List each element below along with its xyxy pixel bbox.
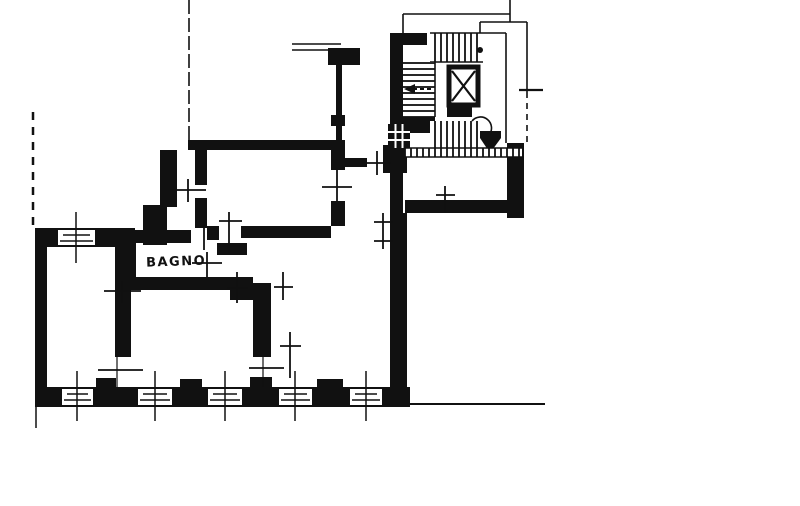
entry-arrow-bar — [480, 131, 501, 138]
wall-thin-upper — [336, 65, 342, 143]
wall-room-right-lower — [331, 201, 345, 226]
wall-pier-3 — [250, 377, 272, 387]
window — [279, 371, 312, 421]
window — [58, 212, 95, 263]
wall-bagno-ne-block — [217, 243, 247, 255]
stair-flight-top — [430, 33, 478, 62]
floorplan-drawing: BAGNO — [0, 0, 800, 506]
wall-left-outer — [35, 228, 47, 407]
window — [138, 371, 172, 421]
wall-room-bottom-right — [241, 226, 331, 238]
wall-hall-top — [188, 140, 345, 150]
wall-balcony-block — [328, 48, 360, 65]
wall-room-left-lower — [195, 198, 207, 228]
stair-grid-window — [388, 124, 410, 148]
window — [350, 371, 382, 421]
grid-window-body — [388, 124, 410, 148]
wall-room-left-upper — [195, 150, 207, 185]
wall-pier-4 — [317, 379, 343, 388]
wall-room-bottom-stub — [207, 226, 219, 240]
wall-outer-left-mid-upper — [160, 150, 177, 207]
wall-junction-block — [383, 145, 407, 173]
stair-dot — [477, 47, 483, 53]
wall-outer-left-mid-lower — [143, 205, 167, 245]
wall-bagno-bottom — [128, 277, 244, 290]
wall-right-wing — [390, 213, 407, 392]
wall-thin-knob — [331, 115, 345, 126]
door-cross — [274, 272, 293, 300]
wall-partition-b — [253, 283, 271, 357]
wall-stair-left — [390, 33, 403, 213]
window — [208, 371, 242, 421]
door-cross — [322, 170, 352, 201]
door-cross — [219, 212, 242, 253]
wall-pier-1 — [96, 378, 116, 388]
wall-bagno-left — [128, 243, 136, 279]
reference-lines — [33, 0, 545, 428]
stair-flight-bottom — [430, 121, 478, 148]
wall-corridor-bottom — [405, 200, 510, 213]
wall-stair-top — [390, 33, 427, 45]
wall-pier-2 — [180, 379, 202, 388]
elevator-shaft — [449, 67, 478, 105]
bagno-room-label: BAGNO — [146, 254, 207, 271]
window — [62, 371, 93, 421]
floorplan-page: BAGNO — [0, 0, 800, 506]
stair-corridor-band — [405, 148, 522, 157]
